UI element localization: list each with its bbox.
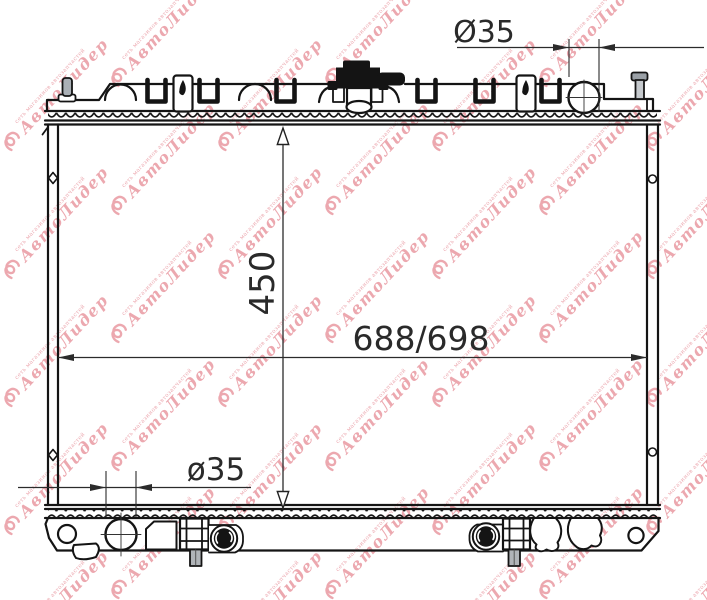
top-port-diameter-label: Ø35 bbox=[453, 15, 515, 50]
drawing-canvas: АвтоЛидер сеть магазинов автозапчастей bbox=[0, 0, 707, 600]
watermark bbox=[105, 224, 220, 345]
filler-cap bbox=[328, 61, 406, 91]
right-bolt-head bbox=[476, 526, 496, 546]
filler-cap-assembly bbox=[328, 61, 406, 114]
watermark bbox=[640, 32, 707, 153]
watermark bbox=[426, 160, 541, 281]
core-height-label: 450 bbox=[243, 251, 283, 316]
right-plate-hole-top bbox=[649, 175, 657, 183]
watermark bbox=[105, 0, 220, 89]
right-mount-bracket bbox=[503, 519, 530, 550]
bottom-port-diameter-label: ø35 bbox=[187, 452, 245, 488]
watermark bbox=[533, 352, 648, 473]
bottom-left-tab bbox=[73, 544, 99, 560]
left-bolt-head bbox=[214, 528, 234, 548]
bottom-clip-1 bbox=[530, 519, 561, 551]
watermark bbox=[533, 0, 648, 89]
bottom-left-ear-hole bbox=[58, 525, 76, 543]
top-port-crosshair bbox=[566, 80, 602, 115]
watermark bbox=[319, 352, 434, 473]
top-left-stud bbox=[63, 78, 73, 96]
bottom-crimp-scallops bbox=[48, 510, 657, 518]
radiator-technical-drawing: АвтоЛидер сеть магазинов автозапчастей bbox=[0, 0, 707, 600]
bottom-dim-arrow-left bbox=[90, 484, 106, 491]
top-right-stud bbox=[636, 80, 645, 99]
watermark bbox=[319, 480, 434, 600]
filler-cap-body bbox=[336, 68, 380, 89]
overall-width-label: 688/698 bbox=[352, 319, 489, 358]
right-plate-hole-bottom bbox=[649, 448, 657, 456]
bottom-clip-2 bbox=[568, 519, 602, 549]
watermark bbox=[0, 32, 112, 153]
bottom-left-mount bbox=[180, 519, 243, 567]
overflow-nipple bbox=[377, 73, 405, 86]
watermark bbox=[0, 288, 112, 409]
left-plate-diamond-hole-top bbox=[49, 173, 58, 184]
bottom-right-ear-hole bbox=[628, 528, 643, 543]
watermark bbox=[533, 224, 648, 345]
top-tank-dome-arc-1 bbox=[105, 85, 136, 100]
filler-cap-ear-left bbox=[328, 81, 338, 90]
filler-neck-bottom bbox=[347, 101, 372, 113]
left-mount-bracket bbox=[180, 519, 209, 550]
top-dim-arrow-right bbox=[599, 44, 615, 51]
watermark bbox=[640, 544, 707, 600]
bottom-step-bracket bbox=[146, 522, 177, 550]
bottom-dim-arrow-right bbox=[136, 484, 152, 491]
watermark bbox=[426, 544, 541, 600]
watermark bbox=[640, 288, 707, 409]
height-arrow-top bbox=[277, 128, 288, 145]
